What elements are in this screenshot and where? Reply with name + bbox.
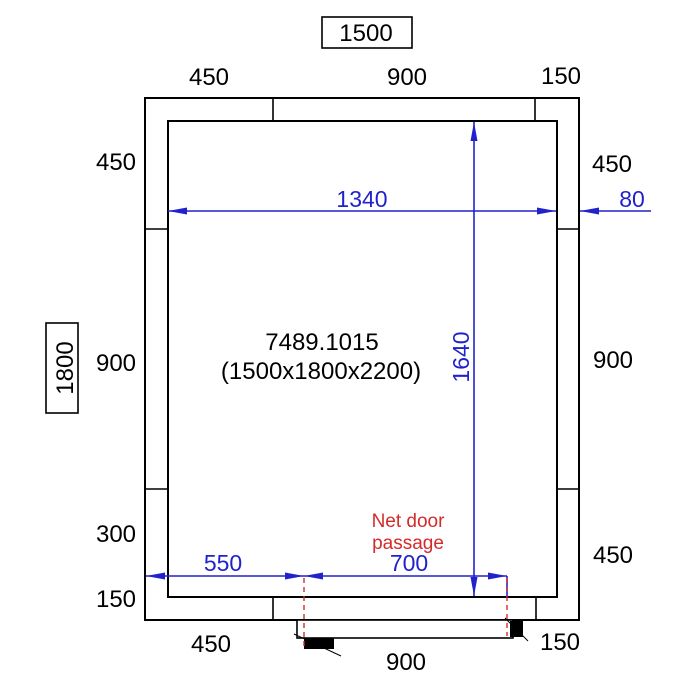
overall-depth-box: 1800 [46,323,79,413]
dim-wall-thickness-label: 80 [619,186,645,212]
dim-left-seg3: 300 [96,521,136,548]
dim-left-seg1: 450 [96,149,136,176]
arrow-left-icon [580,208,599,215]
dim-bottom-left: 450 [191,631,231,658]
dim-door-offset-label: 550 [204,550,242,576]
overall-width-box: 1500 [322,17,412,48]
dim-right-seg2: 900 [593,347,633,374]
product-size-label: (1500x1800x2200) [221,358,421,385]
arrow-right-icon [488,573,507,580]
dim-inner-width-label: 1340 [336,186,387,212]
overall-depth-label: 1800 [52,341,79,394]
product-label: 7489.1015 (1500x1800x2200) [221,329,421,385]
arrow-right-icon [285,573,304,580]
cold-room-floorplan-drawing: 1500 1800 450 900 150 450 900 300 150 45… [0,0,700,700]
arrow-up-icon [471,122,478,141]
floorplan-svg: 1500 1800 450 900 150 450 900 300 150 45… [0,0,700,700]
dim-left-seg2: 900 [96,350,136,377]
product-code: 7489.1015 [265,329,378,356]
dimension-labels-left: 450 900 300 150 [96,149,136,613]
dim-inner-depth-label: 1640 [448,331,474,382]
door-note: Net door passage [372,511,446,554]
dim-top-left: 450 [189,64,229,91]
door-hinge-block-left [304,638,334,649]
dim-inner-depth: 1640 [448,122,478,596]
arrow-right-icon [537,208,556,215]
arrow-left-icon [168,208,187,215]
door-leaf [297,620,513,638]
dim-door-offset: 550 [146,550,304,580]
dim-bottom-middle: 900 [386,649,426,676]
arrow-left-icon [146,573,165,580]
dim-left-seg4: 150 [96,586,136,613]
dim-door-passage: 700 [304,550,507,597]
dim-right-seg3: 450 [593,542,633,569]
dim-top-right: 150 [541,63,581,90]
arrow-left-icon [304,573,323,580]
dim-right-seg1: 450 [592,151,632,178]
dim-inner-width: 1340 [168,186,556,215]
door-note-line2: passage [372,533,444,554]
overall-width-label: 1500 [339,20,392,47]
dim-bottom-right: 150 [540,629,580,656]
door-hinge-block-right [510,621,523,637]
door-note-line1: Net door [372,511,446,532]
dim-top-middle: 900 [387,64,427,91]
dim-wall-thickness: 80 [580,186,651,215]
arrow-down-icon [471,577,478,596]
dimension-labels-top: 450 900 150 [189,63,581,91]
